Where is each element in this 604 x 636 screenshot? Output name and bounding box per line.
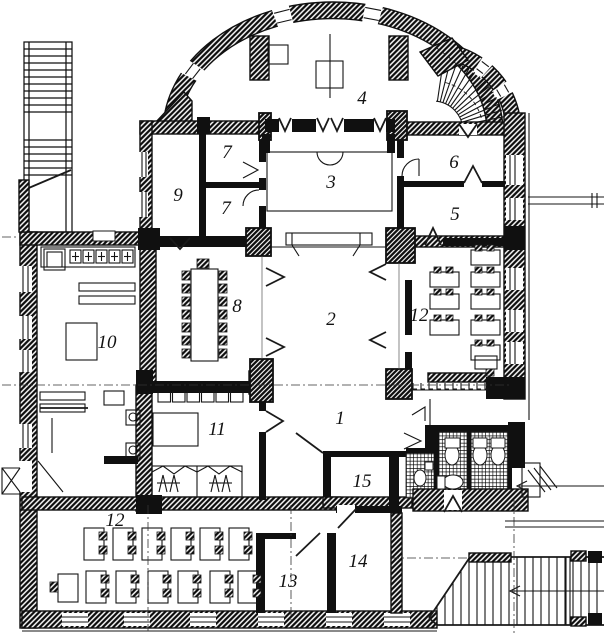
svg-text:12: 12 (410, 305, 430, 326)
svg-text:10: 10 (98, 332, 118, 353)
svg-text:1: 1 (335, 408, 345, 429)
svg-text:3: 3 (325, 172, 336, 193)
svg-text:13: 13 (279, 571, 298, 592)
svg-text:4: 4 (357, 88, 367, 109)
svg-text:2: 2 (326, 309, 336, 330)
svg-text:8: 8 (232, 296, 242, 317)
svg-text:7: 7 (222, 142, 233, 163)
svg-text:6: 6 (449, 152, 459, 173)
svg-text:12: 12 (106, 510, 126, 531)
svg-text:14: 14 (349, 551, 369, 572)
svg-text:15: 15 (353, 471, 372, 492)
svg-text:5: 5 (450, 204, 460, 225)
svg-text:11: 11 (208, 419, 226, 440)
svg-text:7: 7 (221, 198, 232, 219)
svg-text:9: 9 (173, 185, 183, 206)
